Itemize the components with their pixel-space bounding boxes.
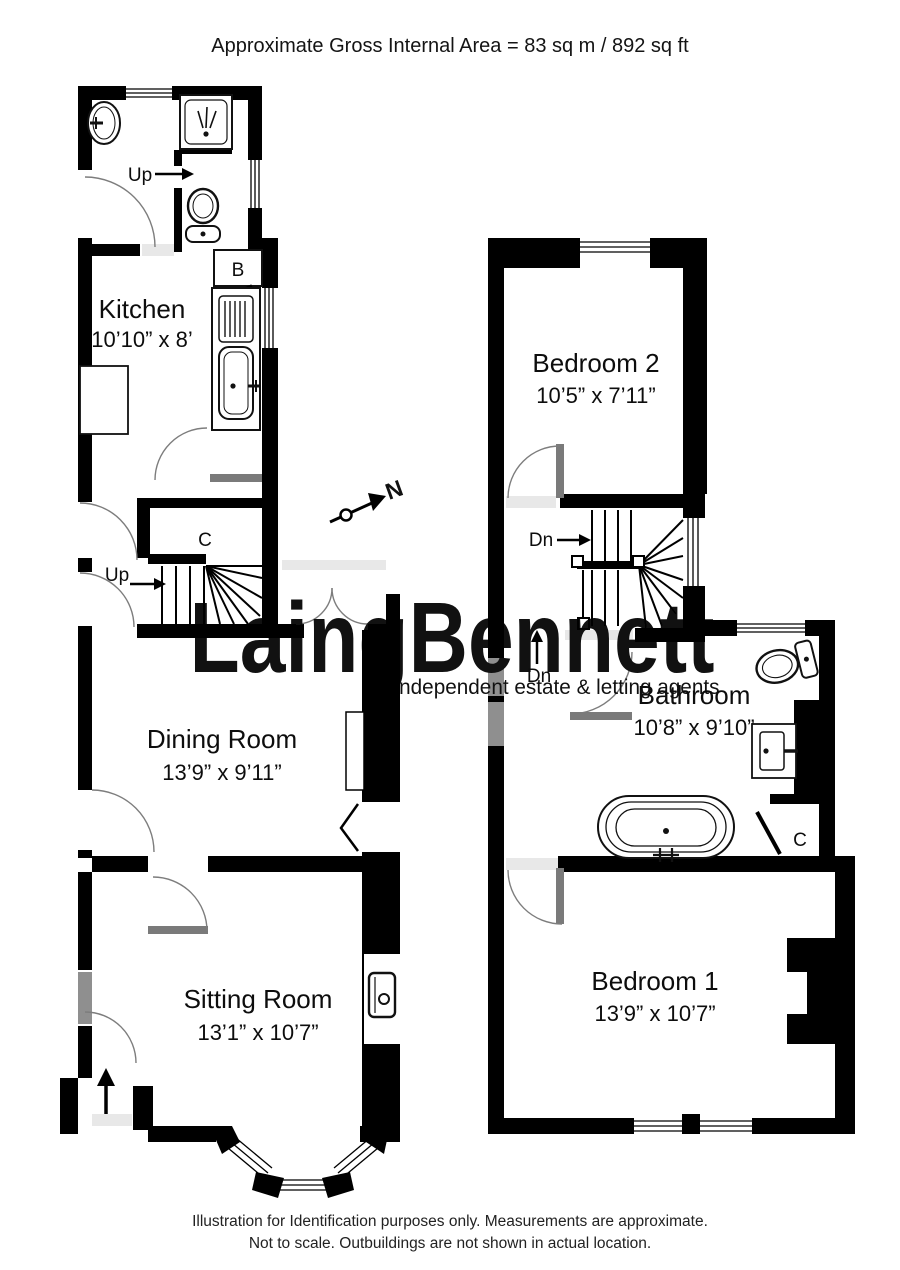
- door-leaf: [148, 926, 208, 934]
- door-leaf: [556, 444, 564, 498]
- up-stairs-label: Up: [105, 565, 129, 586]
- door-arc: [508, 870, 562, 924]
- door-arc: [85, 177, 155, 247]
- fireplace-recess: [346, 712, 364, 790]
- sitting-room-dims: 13’1” x 10’7”: [197, 1020, 318, 1045]
- window-icon: [126, 89, 172, 97]
- floorplan-svg: Approximate Gross Internal Area = 83 sq …: [0, 0, 900, 1270]
- door-arc: [92, 790, 154, 852]
- threshold: [506, 496, 556, 508]
- dn-stairs-arrow: [557, 534, 591, 546]
- door-leaf: [556, 868, 564, 924]
- watermark: LaingBennett independent estate & lettin…: [190, 582, 720, 699]
- bathroom-dims: 10’8” x 9’10”: [633, 715, 754, 740]
- threshold: [92, 1114, 132, 1126]
- bedroom1-name: Bedroom 1: [591, 966, 718, 996]
- dining-room-dims: 13’9” x 9’11”: [162, 760, 281, 785]
- threshold: [142, 244, 174, 256]
- dn-stairs-label: Dn: [529, 530, 553, 551]
- sitting-room-name: Sitting Room: [184, 984, 333, 1014]
- entrance-arrow-icon: [97, 1068, 115, 1114]
- boiler-label: B: [232, 260, 245, 281]
- footer-line-2: Not to scale. Outbuildings are not shown…: [249, 1235, 651, 1252]
- window-icon: [251, 160, 259, 208]
- door-arc: [508, 446, 560, 498]
- kitchen-dims: 10’10” x 8’: [91, 327, 193, 352]
- window-icon: [78, 972, 92, 1024]
- window-icon: [488, 702, 504, 746]
- shower-icon: [180, 95, 232, 149]
- front-door-arc: [85, 1012, 136, 1063]
- up-stairs-arrow: [130, 578, 166, 590]
- window-icon: [737, 624, 805, 632]
- stove-icon: [364, 954, 400, 1044]
- fireplace-recess: [787, 972, 807, 1014]
- bedroom1-dims: 13’9” x 10’7”: [594, 1001, 715, 1026]
- sink-unit-icon: [212, 288, 260, 430]
- watermark-tagline: independent estate & letting agents: [395, 676, 720, 699]
- threshold: [282, 560, 386, 570]
- north-label: N: [382, 475, 407, 505]
- cupboard-door-icon: [757, 812, 780, 854]
- cupboard-label: C: [198, 530, 212, 551]
- door-arc: [155, 428, 207, 480]
- garden-door-icon: [341, 804, 358, 851]
- floorplan-page: Approximate Gross Internal Area = 83 sq …: [0, 0, 900, 1270]
- basin-icon: [88, 102, 120, 144]
- up-steps-arrow: [155, 168, 194, 180]
- toilet-icon: [753, 640, 819, 689]
- wash-basin-icon: [752, 724, 798, 778]
- bedroom2-name: Bedroom 2: [532, 348, 659, 378]
- dining-room-name: Dining Room: [147, 724, 297, 754]
- bath-icon: [598, 796, 734, 862]
- newel-post: [572, 556, 583, 567]
- threshold: [506, 858, 558, 870]
- compass-north-arrow: N: [330, 475, 406, 522]
- footer-note: Illustration for Identification purposes…: [192, 1213, 708, 1252]
- worktop-icon: [80, 366, 128, 434]
- door-leaf: [570, 712, 632, 720]
- toilet-icon: [186, 189, 220, 242]
- page-title: Approximate Gross Internal Area = 83 sq …: [211, 35, 689, 57]
- newel-post: [633, 556, 644, 567]
- window-icon: [580, 242, 650, 252]
- cupboard-label: C: [793, 830, 807, 851]
- footer-line-1: Illustration for Identification purposes…: [192, 1213, 708, 1230]
- door-arc: [80, 503, 137, 560]
- up-steps-label: Up: [128, 165, 152, 186]
- window-icon: [688, 518, 698, 586]
- door-leaf: [210, 474, 262, 482]
- door-arc: [153, 877, 207, 931]
- kitchen-name: Kitchen: [99, 294, 186, 324]
- bedroom2-dims: 10’5” x 7’11”: [536, 383, 655, 408]
- window-icon: [265, 288, 273, 348]
